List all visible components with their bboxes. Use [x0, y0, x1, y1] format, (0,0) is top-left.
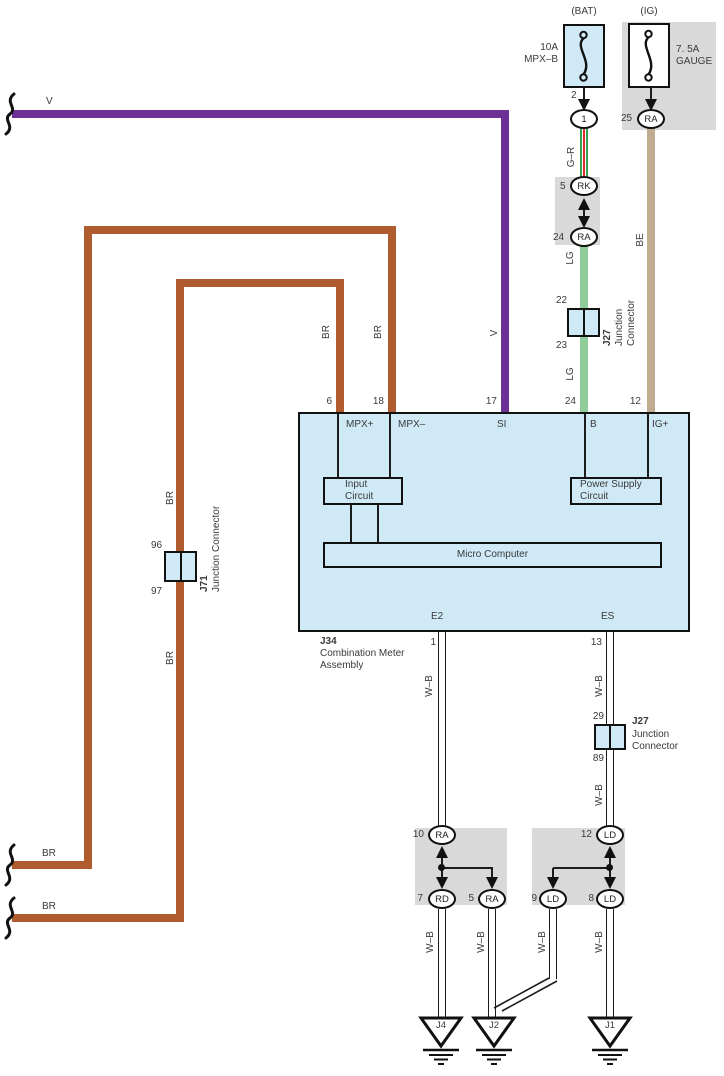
connector-rd-7: RD	[428, 889, 456, 909]
relay-right-branch	[553, 867, 610, 869]
wire-br-outer-top	[84, 226, 396, 234]
pin-24-b: 24	[560, 396, 576, 407]
j27-top-name-2: Connector	[626, 292, 638, 346]
terminal-si: SI	[497, 419, 506, 430]
up-arrow-icon	[578, 198, 590, 210]
bat-fuse-header: (BAT)	[559, 6, 609, 17]
connector-ld-9: LD	[539, 889, 567, 909]
pin-97: 97	[151, 586, 162, 597]
wire-br-inner-top	[176, 279, 344, 287]
down-arrow-icon	[604, 877, 616, 889]
j27-top-name-1: Junction	[614, 292, 626, 346]
connector-ra-24: RA	[570, 227, 598, 247]
connector-1: 1	[570, 109, 598, 129]
wire-br-inner-right	[336, 279, 344, 412]
wire-wb-j1	[606, 909, 614, 1018]
wire-br-inner-bottom	[12, 914, 184, 922]
wire-label-wb-es-upper: W–B	[593, 666, 605, 706]
inner-line-mpx-plus	[337, 414, 339, 477]
bat-fuse-name: MPX–B	[506, 54, 558, 66]
pin-6: 6	[316, 396, 332, 407]
wire-wb-j4	[438, 909, 446, 1018]
j71-label: J71 Junction Connector	[199, 500, 223, 592]
j34-name-2: Assembly	[320, 660, 404, 672]
wire-label-wb-j1: W–B	[593, 922, 605, 962]
wire-label-wb-j4: W–B	[424, 922, 436, 962]
wire-wb-e2	[438, 632, 446, 828]
terminal-ig-plus: IG+	[652, 419, 668, 430]
junction-connector-j27-top	[567, 308, 600, 337]
connector-ra-10: RA	[428, 825, 456, 845]
down-arrow-icon	[486, 877, 498, 889]
terminal-mpx-minus: MPX–	[398, 419, 425, 430]
pin-5-rk: 5	[560, 181, 566, 192]
wire-label-wb-es-lower: W–B	[593, 775, 605, 815]
ig-fuse-box	[628, 23, 670, 88]
ground-j2-label: J2	[471, 1020, 517, 1031]
ig-fuse-name: GAUGE	[676, 56, 712, 68]
down-arrow-icon	[436, 877, 448, 889]
ground-j4-label: J4	[418, 1020, 464, 1031]
pin-10: 10	[404, 829, 424, 840]
pin-29: 29	[588, 711, 604, 722]
junction-divider	[583, 309, 585, 336]
pin-12b: 12	[572, 829, 592, 840]
wire-br-outer-bottom	[12, 861, 92, 869]
wire-v-vertical	[501, 110, 509, 412]
input-circuit-box: Input Circuit	[323, 477, 403, 505]
terminal-b: B	[590, 419, 597, 430]
break-icon	[1, 843, 19, 887]
j27-top-label: J27 Junction Connector	[602, 292, 638, 346]
pin-22: 22	[556, 295, 567, 306]
pin-7: 7	[411, 893, 423, 904]
connector-ld-8: LD	[596, 889, 624, 909]
wire-wb-es-lower	[606, 750, 614, 828]
wire-label-lg-lower: LG	[564, 354, 576, 394]
wire-lg-lower	[580, 337, 588, 412]
j34-id: J34	[320, 636, 404, 648]
micro-computer-label: Micro Computer	[457, 549, 528, 561]
wire-label-wb-e2: W–B	[423, 666, 435, 706]
ground-j2: J2	[471, 1016, 517, 1072]
up-arrow-icon	[436, 846, 448, 858]
pin-25: 25	[621, 113, 632, 124]
wiring-diagram: (BAT) (IG) 10A MPX–B 7. 5A GAUGE 2 1 25 …	[0, 0, 724, 1076]
micro-computer-box: Micro Computer	[323, 542, 662, 568]
wire-label-br-exit-lower: BR	[42, 901, 56, 912]
wire-label-br-j71-below: BR	[164, 638, 176, 678]
ground-j4: J4	[418, 1016, 464, 1072]
wire-br-outer-right	[388, 226, 396, 412]
pin-1: 1	[424, 637, 436, 648]
wire-label-br-j71-above: BR	[164, 478, 176, 518]
connector-ra-5: RA	[478, 889, 506, 909]
ig-fuse-header: (IG)	[624, 6, 674, 17]
junction-dot	[606, 864, 613, 871]
input-circuit-line1: Input	[345, 479, 401, 491]
wire-be	[647, 128, 655, 412]
wire-label-wb-j2: W–B	[475, 922, 487, 962]
junction-divider	[609, 725, 611, 749]
pin-12-ig: 12	[625, 396, 641, 407]
j27-mid-label: J27 Junction Connector	[632, 716, 678, 754]
terminal-es: ES	[601, 611, 614, 622]
ig-fuse-label: 7. 5A GAUGE	[676, 44, 712, 68]
wire-v-horizontal	[12, 110, 509, 118]
terminal-e2: E2	[431, 611, 443, 622]
wire-label-be: BE	[634, 220, 646, 260]
connector-rk: RK	[570, 176, 598, 196]
inner-line-input-micro-2	[377, 505, 379, 542]
pin-5b: 5	[462, 893, 474, 904]
junction-connector-j27-mid	[594, 724, 626, 750]
fuse-icon	[565, 27, 602, 86]
pin-8: 8	[582, 893, 594, 904]
j71-name: Junction Connector	[211, 500, 223, 592]
wire-br-outer-left	[84, 226, 92, 869]
pin-13: 13	[586, 637, 602, 648]
terminal-mpx-plus: MPX+	[346, 419, 374, 430]
junction-divider	[180, 552, 182, 581]
bat-fuse-rating: 10A	[506, 42, 558, 54]
pin-18: 18	[368, 396, 384, 407]
wire-br-inner-left	[176, 279, 184, 922]
wire-label-wb-ld9: W–B	[536, 922, 548, 962]
power-supply-line1: Power Supply	[580, 479, 660, 491]
connector-ra-25: RA	[637, 109, 665, 129]
wire-label-v-top: V	[46, 96, 53, 107]
j71-id: J71	[199, 500, 211, 592]
connector-ld-12: LD	[596, 825, 624, 845]
inner-line-input-micro-1	[350, 505, 352, 542]
wire-g-r	[580, 128, 588, 177]
wire-label-g-r: G–R	[565, 137, 577, 177]
pin-17: 17	[481, 396, 497, 407]
j27-mid-id: J27	[632, 716, 678, 729]
wire-wb-es-upper	[606, 632, 614, 724]
pin-24-ra: 24	[553, 232, 564, 243]
wire-wb-diagonal	[488, 966, 568, 1018]
up-arrow-icon	[604, 846, 616, 858]
wire-label-br-mpx-minus: BR	[372, 312, 384, 352]
wire-lg-upper	[580, 246, 588, 308]
wire-label-br-exit-upper: BR	[42, 848, 56, 859]
ig-fuse-rating: 7. 5A	[676, 44, 712, 56]
j34-label: J34 Combination Meter Assembly	[320, 636, 404, 672]
pin-96: 96	[151, 540, 162, 551]
input-circuit-line2: Circuit	[345, 491, 401, 503]
combination-meter-box	[298, 412, 690, 632]
relay-left-branch	[441, 867, 493, 869]
break-icon	[1, 92, 19, 136]
pin-9: 9	[525, 893, 537, 904]
inner-line-mpx-minus	[389, 414, 391, 477]
junction-dot	[438, 864, 445, 871]
wire-label-br-mpx-plus: BR	[320, 312, 332, 352]
pin-89: 89	[588, 753, 604, 764]
bat-fuse-box	[563, 24, 605, 88]
inner-line-b	[584, 414, 586, 477]
pin-23: 23	[556, 340, 567, 351]
j27-mid-name-2: Connector	[632, 741, 678, 754]
power-supply-circuit-box: Power Supply Circuit	[570, 477, 662, 505]
ground-j1: J1	[587, 1016, 633, 1072]
break-icon	[1, 896, 19, 940]
wire-label-v-side: V	[488, 313, 500, 353]
fuse-icon	[630, 26, 667, 86]
pin-2: 2	[571, 90, 577, 101]
bat-fuse-label: 10A MPX–B	[506, 42, 558, 66]
j27-mid-name-1: Junction	[632, 729, 678, 742]
j34-name-1: Combination Meter	[320, 648, 404, 660]
inner-line-ig	[647, 414, 649, 477]
junction-connector-j71	[164, 551, 197, 582]
power-supply-line2: Circuit	[580, 491, 660, 503]
down-arrow-icon	[547, 877, 559, 889]
ground-j1-label: J1	[587, 1020, 633, 1031]
j27-top-id: J27	[602, 292, 614, 346]
